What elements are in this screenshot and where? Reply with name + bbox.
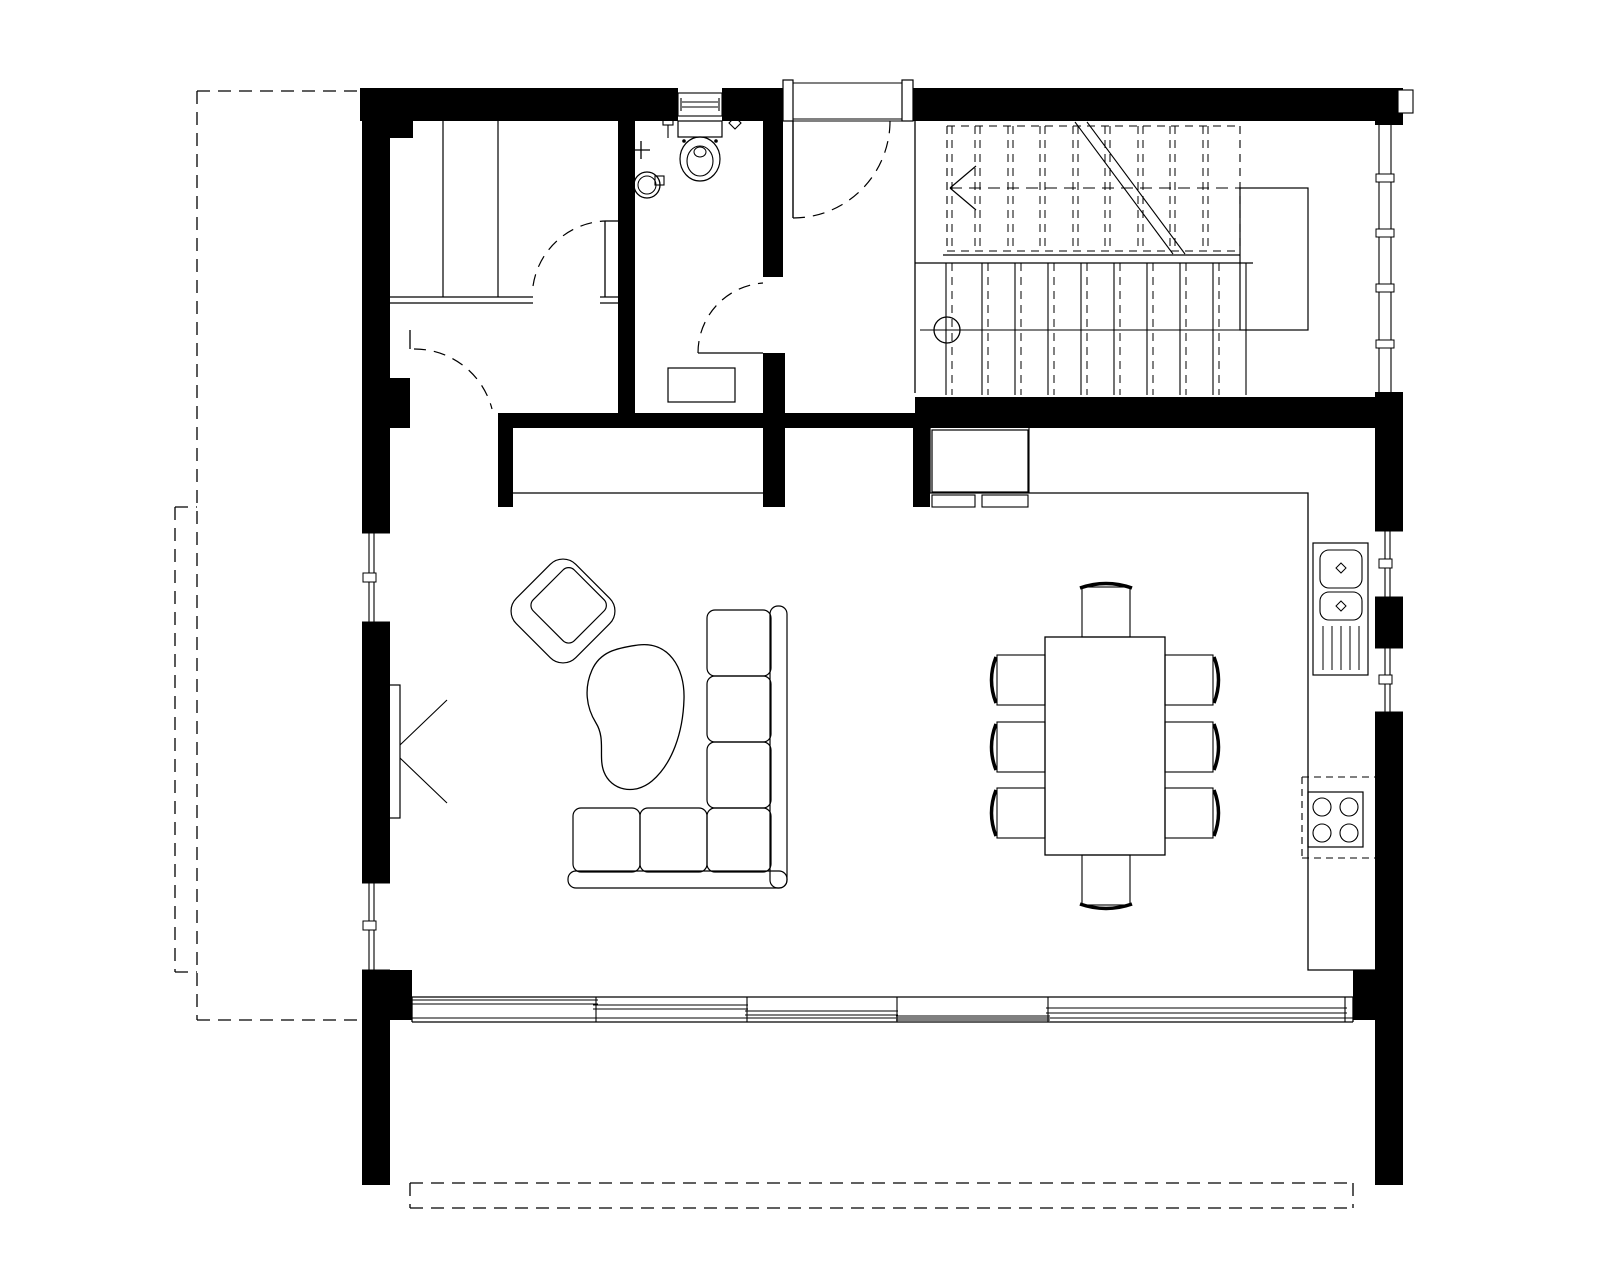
burner — [1340, 824, 1358, 842]
dining-chair-back — [1214, 657, 1219, 703]
wc-door-swing — [698, 283, 763, 353]
dining-chair-seat — [997, 722, 1045, 772]
floor-plan-drawing — [0, 0, 1600, 1280]
southwest-corner-block — [362, 970, 412, 1020]
sofa-cushion — [640, 808, 707, 872]
sink-basin — [1320, 592, 1362, 620]
dining-chair-seat — [1165, 788, 1213, 838]
coffee-table — [587, 645, 684, 790]
niche-column-west — [498, 428, 513, 507]
dining-chair-seat — [997, 788, 1045, 838]
staircase — [915, 121, 1308, 395]
east-wall-pier — [1375, 597, 1403, 648]
hall-south-wall — [498, 413, 915, 428]
armchair-seat — [528, 564, 610, 646]
entry-door-swing — [793, 121, 890, 218]
toilet-flush — [694, 147, 706, 157]
toilet-bowl — [680, 137, 720, 181]
east-wall-upper — [1375, 392, 1403, 531]
sofa-cushion — [707, 808, 771, 872]
east-window1-mullion — [1379, 559, 1392, 568]
roof-overhang-outline — [175, 91, 360, 1020]
east-wall-middle — [1375, 712, 1403, 970]
wc-west-wall — [618, 121, 635, 413]
sink-drain — [1336, 601, 1346, 611]
toilet-bolt — [682, 139, 686, 143]
fireplace-angle — [400, 758, 447, 803]
sofa-backrest — [770, 606, 787, 888]
burner — [1340, 798, 1358, 816]
toilet-bolt — [714, 139, 718, 143]
wash-basin-inner — [638, 176, 656, 194]
fireplace-angle — [400, 700, 447, 745]
dining-chair-seat — [997, 655, 1045, 705]
entry-jamb — [783, 80, 793, 121]
wc-east-column — [763, 353, 785, 507]
walk-line-arrow — [950, 188, 976, 210]
east-wall-lower — [1375, 1020, 1403, 1185]
toilet-bowl-inner — [687, 146, 713, 176]
east-window2-mullion — [1379, 675, 1392, 684]
toilet-tank — [678, 121, 722, 137]
dining-chair-seat — [1165, 655, 1213, 705]
south-glass-wall — [412, 997, 1353, 1022]
stair-south-wall — [915, 397, 1375, 428]
sofa-backrest — [568, 871, 787, 888]
dining-table — [1045, 637, 1165, 855]
stair-window-mullion — [1376, 229, 1394, 237]
dining-chair-seat — [1165, 722, 1213, 772]
burner — [1313, 798, 1331, 816]
stair-window-mullion — [1376, 340, 1394, 348]
dining-chair-back — [1214, 790, 1219, 836]
stair-window-mullion — [1376, 284, 1394, 292]
sofa-cushion — [707, 610, 771, 676]
base-cabinet — [982, 495, 1028, 507]
landing — [1240, 188, 1308, 330]
sink-drain — [1336, 563, 1346, 573]
dining-chair-back — [992, 724, 997, 770]
west-wall-lower — [362, 1020, 390, 1185]
windows — [362, 90, 1413, 970]
top-wall-east — [913, 88, 1375, 121]
kitchen-stub — [913, 428, 930, 507]
tall-cabinet — [932, 430, 1028, 492]
dining-chair-seat — [1082, 587, 1130, 637]
wardrobe-notch — [390, 121, 413, 138]
stair-window-mullion — [1376, 174, 1394, 182]
sofa-cushion — [573, 808, 640, 872]
wc-window-frame — [678, 93, 722, 116]
walk-line-arrow — [950, 166, 976, 188]
wc-cabinet — [668, 368, 735, 402]
wc-east-wall — [763, 121, 783, 277]
living-door-swing — [414, 349, 492, 409]
southeast-corner-block — [1353, 970, 1403, 1020]
sink-basin — [1320, 550, 1362, 588]
wc — [632, 113, 763, 402]
base-cabinet — [932, 495, 975, 507]
living-room — [385, 552, 787, 888]
entry-hall — [388, 121, 765, 493]
west-wall-middle — [362, 622, 390, 883]
sofa-cushion — [707, 742, 771, 808]
dining-chair-back — [992, 790, 997, 836]
dining-chair-seat — [1082, 855, 1130, 905]
top-wall-west — [360, 88, 678, 121]
top-wall-center — [722, 88, 783, 121]
dining-set — [992, 584, 1219, 909]
northeast-jamb — [1398, 90, 1413, 113]
burner — [1313, 824, 1331, 842]
terrace-outline — [410, 1183, 1353, 1208]
wardrobe-door-swing — [533, 221, 605, 286]
floor-plan-page — [0, 0, 1600, 1280]
entry-jamb — [902, 80, 913, 121]
dining-chair-back — [1214, 724, 1219, 770]
sofa-cushion — [707, 676, 771, 742]
dining-chair-back — [992, 657, 997, 703]
west-wall-upper — [362, 121, 390, 533]
door-stub — [382, 378, 410, 428]
west-window-upper-mullion — [363, 573, 376, 582]
walls — [360, 88, 1403, 1185]
entrance — [783, 80, 913, 218]
west-window-lower-mullion — [363, 921, 376, 930]
